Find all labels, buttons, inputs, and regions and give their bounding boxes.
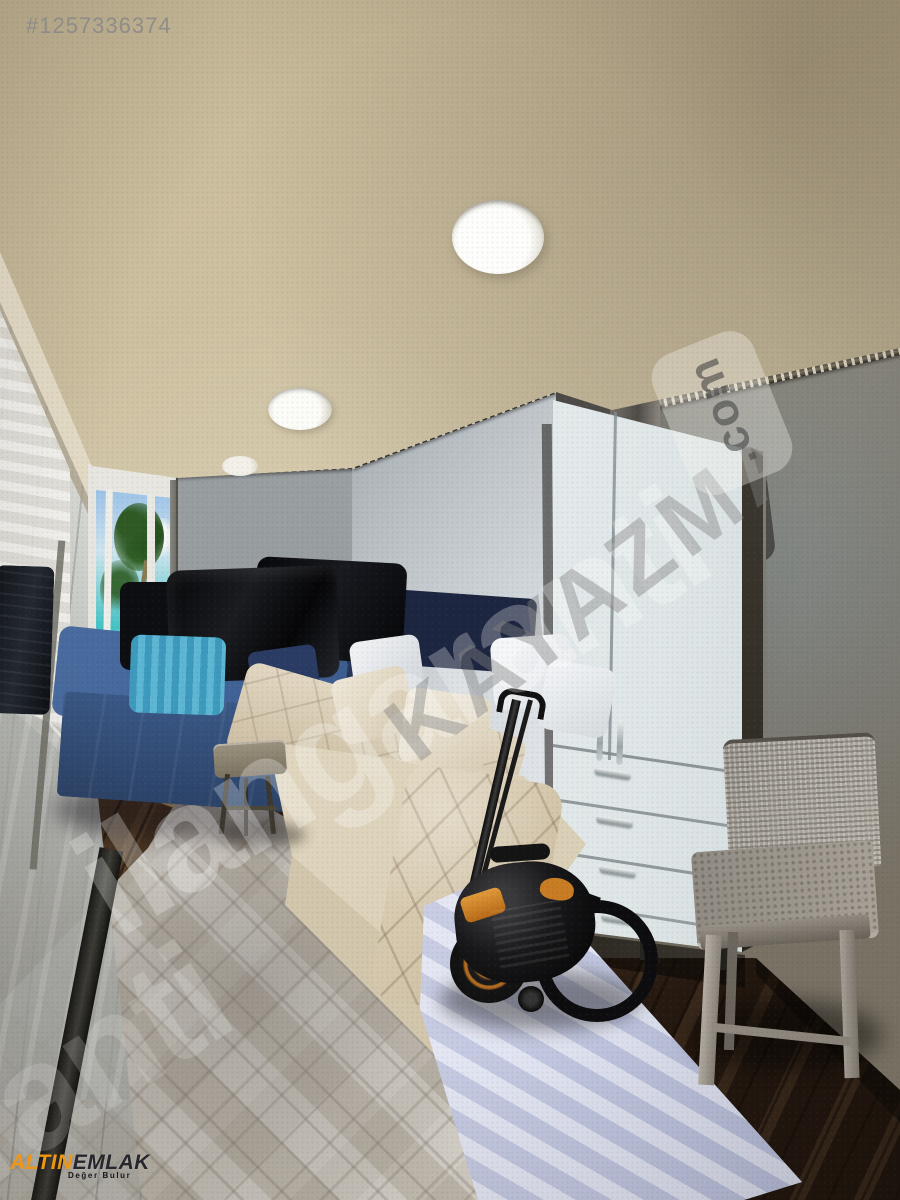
listing-id: #1257336374 [26, 13, 172, 39]
turquoise-suitcase [129, 634, 227, 715]
dark-suitcase-by-window [0, 565, 55, 715]
vacuum-front-wheel [518, 986, 544, 1012]
white-pillow [536, 658, 617, 739]
agency-logo-part1: ALTIN [10, 1151, 73, 1174]
ceiling-lamp-small [222, 456, 258, 476]
cream-pillow [397, 686, 493, 773]
ceiling-lamp [268, 388, 332, 430]
agency-logo: ALTINEMLAK Değer Bulur [10, 1152, 150, 1180]
ceiling-lamp [452, 200, 544, 274]
stool-rail [226, 806, 278, 810]
stool-shadow [216, 822, 306, 848]
vacuum-grill [490, 899, 569, 968]
listing-photo: ilangaranti KAYAZMA garanti .com #125733… [0, 0, 900, 1200]
stool-top [213, 740, 287, 779]
